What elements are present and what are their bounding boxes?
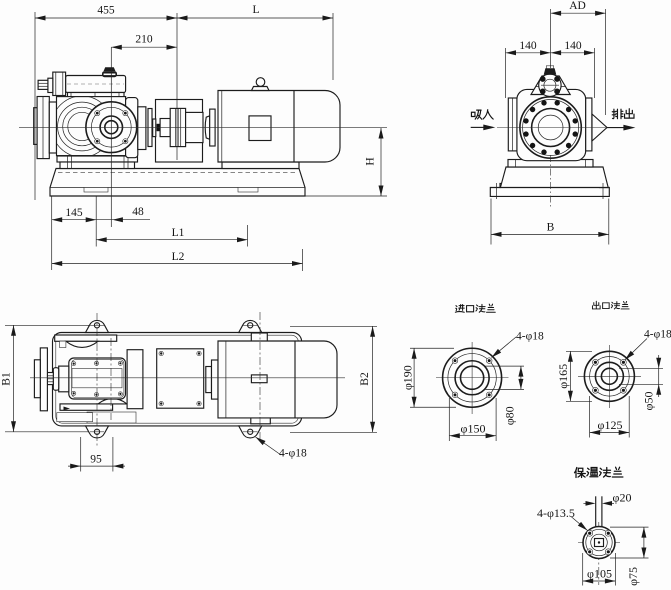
svg-text:210: 210 xyxy=(135,34,153,46)
svg-text:B1: B1 xyxy=(1,372,13,386)
svg-text:L: L xyxy=(252,4,259,16)
svg-text:L1: L1 xyxy=(172,227,185,239)
svg-text:140: 140 xyxy=(519,40,537,52)
svg-text:4-φ18: 4-φ18 xyxy=(644,329,671,341)
svg-text:4-φ18: 4-φ18 xyxy=(516,331,544,343)
svg-text:B: B xyxy=(547,222,555,234)
svg-text:140: 140 xyxy=(564,40,582,52)
svg-text:145: 145 xyxy=(65,207,83,219)
svg-text:4-φ13.5: 4-φ13.5 xyxy=(537,506,575,520)
svg-text:φ75: φ75 xyxy=(626,567,640,586)
svg-text:L2: L2 xyxy=(172,251,185,263)
svg-text:φ80: φ80 xyxy=(503,406,517,425)
svg-text:AD: AD xyxy=(569,0,586,12)
svg-text:48: 48 xyxy=(132,206,144,218)
svg-text:φ165: φ165 xyxy=(556,364,570,389)
svg-text:H: H xyxy=(365,157,377,165)
svg-text:455: 455 xyxy=(97,5,115,17)
svg-text:φ125: φ125 xyxy=(598,418,623,432)
svg-text:φ105: φ105 xyxy=(587,567,612,581)
svg-text:95: 95 xyxy=(90,454,102,466)
svg-text:φ50: φ50 xyxy=(641,392,655,411)
svg-text:4-φ18: 4-φ18 xyxy=(279,448,307,460)
svg-text:φ20: φ20 xyxy=(613,491,632,505)
svg-text:B2: B2 xyxy=(359,372,371,386)
svg-text:φ150: φ150 xyxy=(461,421,486,435)
svg-text:φ190: φ190 xyxy=(401,365,415,390)
